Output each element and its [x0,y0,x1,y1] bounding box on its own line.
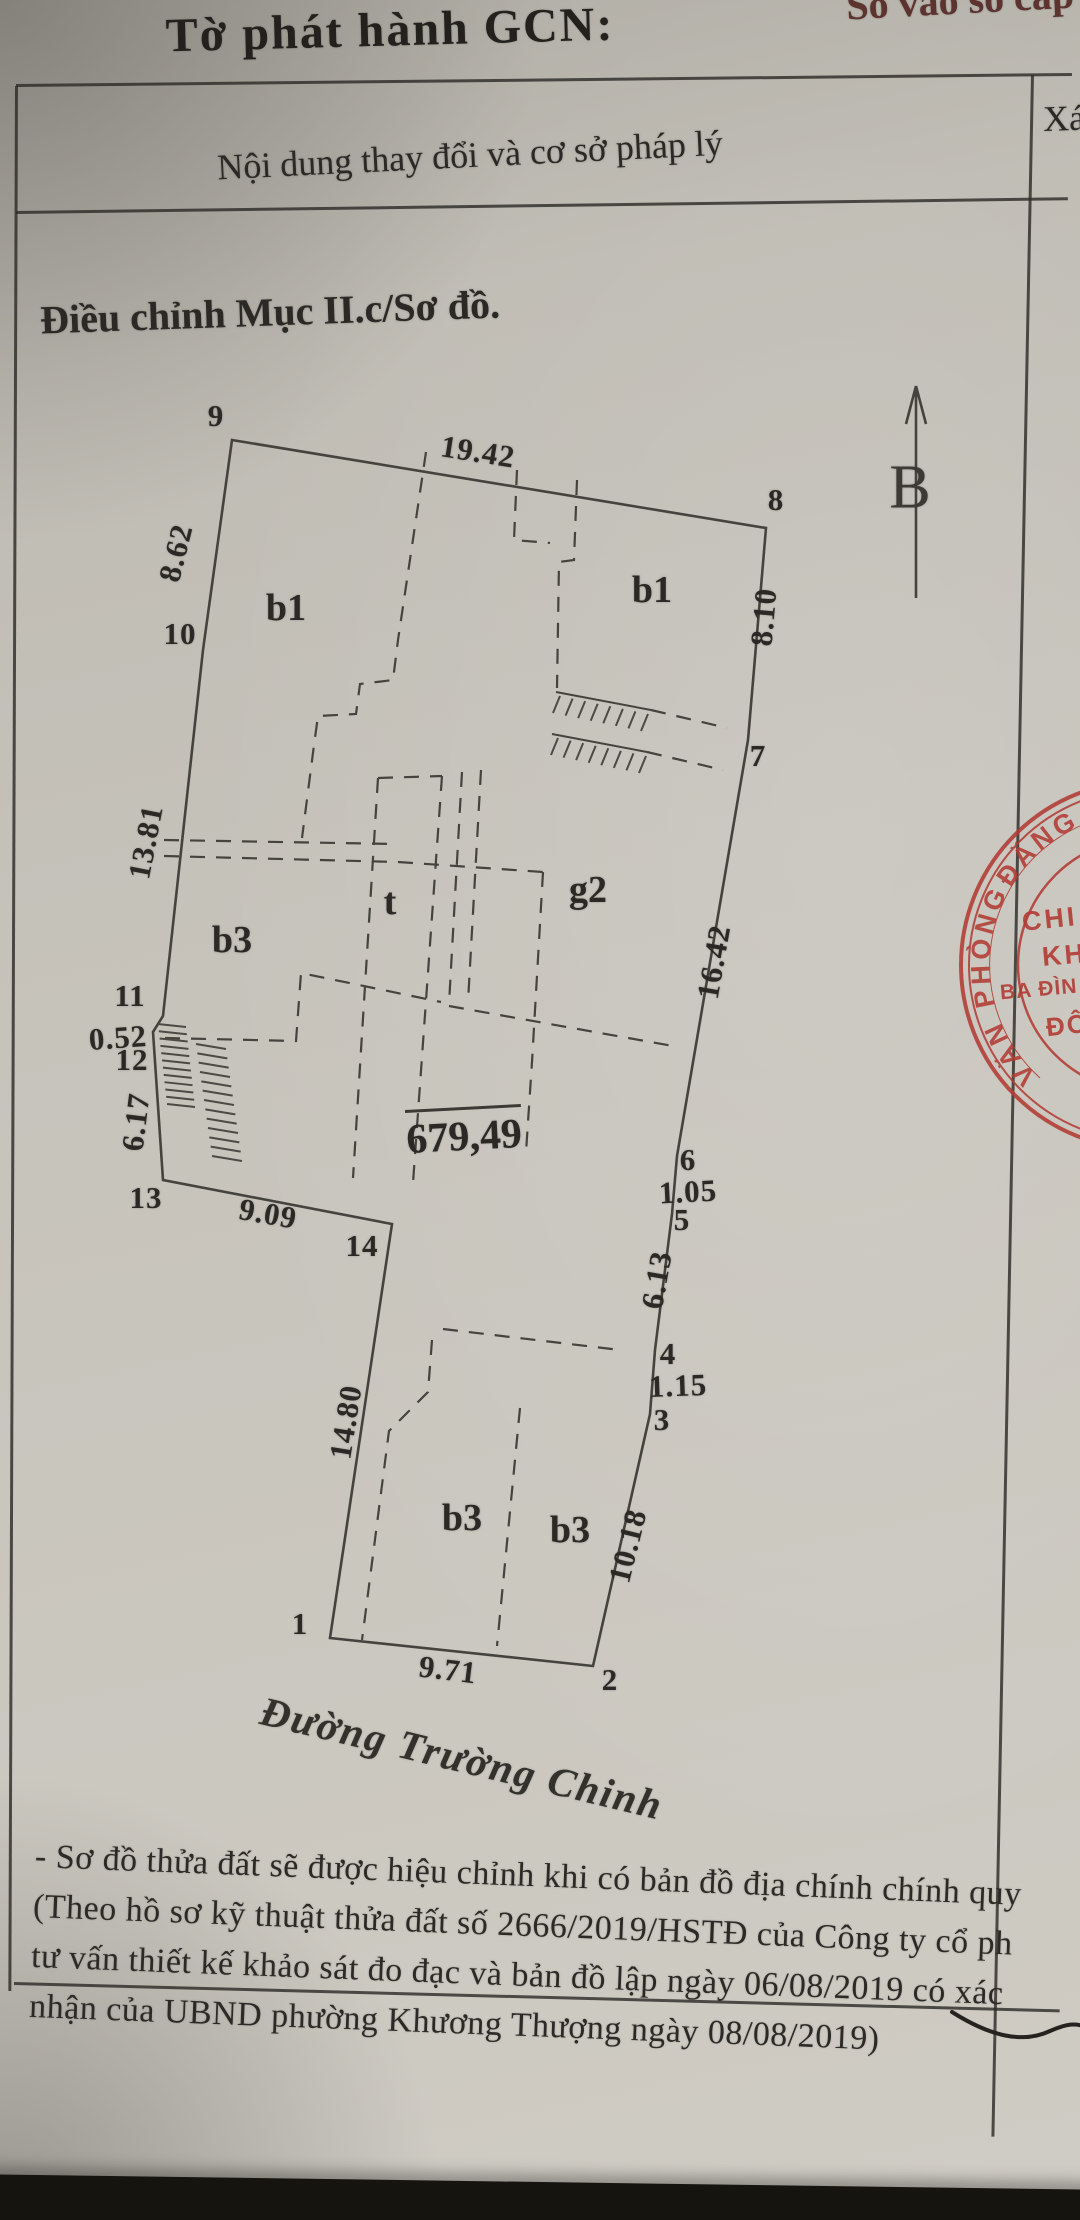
region-label-b3-bottom-left: b3 [442,1496,482,1540]
corner-register-note: Sổ vào sổ cấp [845,0,1075,29]
parcel-boundary [153,440,766,1666]
table-border-top [16,73,1072,87]
stamp-arc-text-top: ĐĂNG [990,804,1080,891]
edge-length-12-13: 6.17 [115,1091,158,1153]
staircase-outline [552,692,651,752]
edge-length-14-1: 14.80 [322,1382,369,1461]
stamp-inner-line-4: ĐÔ [1044,1008,1080,1043]
vertex-label-4: 4 [660,1336,677,1372]
edge-length-3-4: 1.15 [648,1367,707,1405]
table-border-column-divider [991,75,1033,2137]
vertex-label-11: 11 [114,978,145,1014]
vertex-label-3: 3 [654,1402,671,1438]
edge-length-9-10: 8.62 [151,520,200,585]
stamp-inner-line-1: CHI [1021,901,1079,938]
edge-length-10-11: 13.81 [121,802,171,882]
region-label-b1-left: b1 [266,586,306,630]
north-letter: B [889,453,930,524]
region-label-b3-bottom-right: b3 [550,1508,590,1552]
parcel-area-label: 679,49 [405,1104,523,1164]
vertex-label-14: 14 [346,1228,379,1264]
edge-length-9-8: 19.42 [438,428,517,475]
edge-length-11-12: 0.52 [88,1018,149,1058]
stair-hatch-middle-upper [553,696,648,731]
footnote-block: - Sơ đồ thửa đất sẽ được hiệu chỉnh khi … [28,1832,1080,2075]
edge-length-7-8: 8.10 [744,586,785,647]
stair-hatch-left-inner [158,1024,195,1107]
vertex-label-6: 6 [680,1142,697,1178]
edge-length-13-14: 9.09 [236,1191,300,1237]
street-name-label: Đường Trường Chinh [256,1687,668,1830]
edge-length-5-6: 1.05 [658,1173,718,1212]
edge-length-2-3: 10.18 [601,1505,654,1586]
stamp-inner-line-3: BA ĐÌN [999,975,1078,1006]
interior-walls [164,452,727,1646]
scanned-certificate-page: Tờ phát hành GCN: Sổ vào sổ cấp Nội dung… [0,0,1080,2220]
photo-bottom-desk-edge [0,2174,1080,2220]
stamp-arc-text-bottom: VĂN [977,1016,1041,1092]
table-header-left-cell: Nội dung thay đổi và cơ sở pháp lý [216,122,723,189]
stamp-inner-line-2: KH [1041,938,1080,973]
edge-length-6-7: 16.42 [690,922,738,1002]
vertex-label-2: 2 [602,1662,619,1698]
region-label-b1-right: b1 [632,568,672,612]
table-header-right-cell: Xác [1042,96,1080,140]
vertex-label-1: 1 [292,1606,309,1642]
vertex-label-7: 7 [750,738,767,774]
vertex-label-8: 8 [768,482,785,518]
page-title: Tờ phát hành GCN: [165,0,615,63]
section-title: Điều chỉnh Mục II.c/Sơ đồ. [39,280,500,343]
region-label-t-room: t [384,880,397,924]
region-label-b3-middle: b3 [212,918,252,962]
vertex-label-13: 13 [130,1180,163,1216]
stair-hatch-middle-lower [551,738,646,773]
table-border-left [8,86,17,1991]
region-label-g2: g2 [569,868,607,912]
vertex-label-9: 9 [208,398,225,434]
edge-length-4-5: 6.13 [634,1248,680,1312]
edge-length-1-2: 9.71 [417,1649,479,1692]
table-border-header-bottom [16,197,1068,214]
stair-hatch-left-outer [196,1044,242,1161]
vertex-label-10: 10 [164,616,197,652]
